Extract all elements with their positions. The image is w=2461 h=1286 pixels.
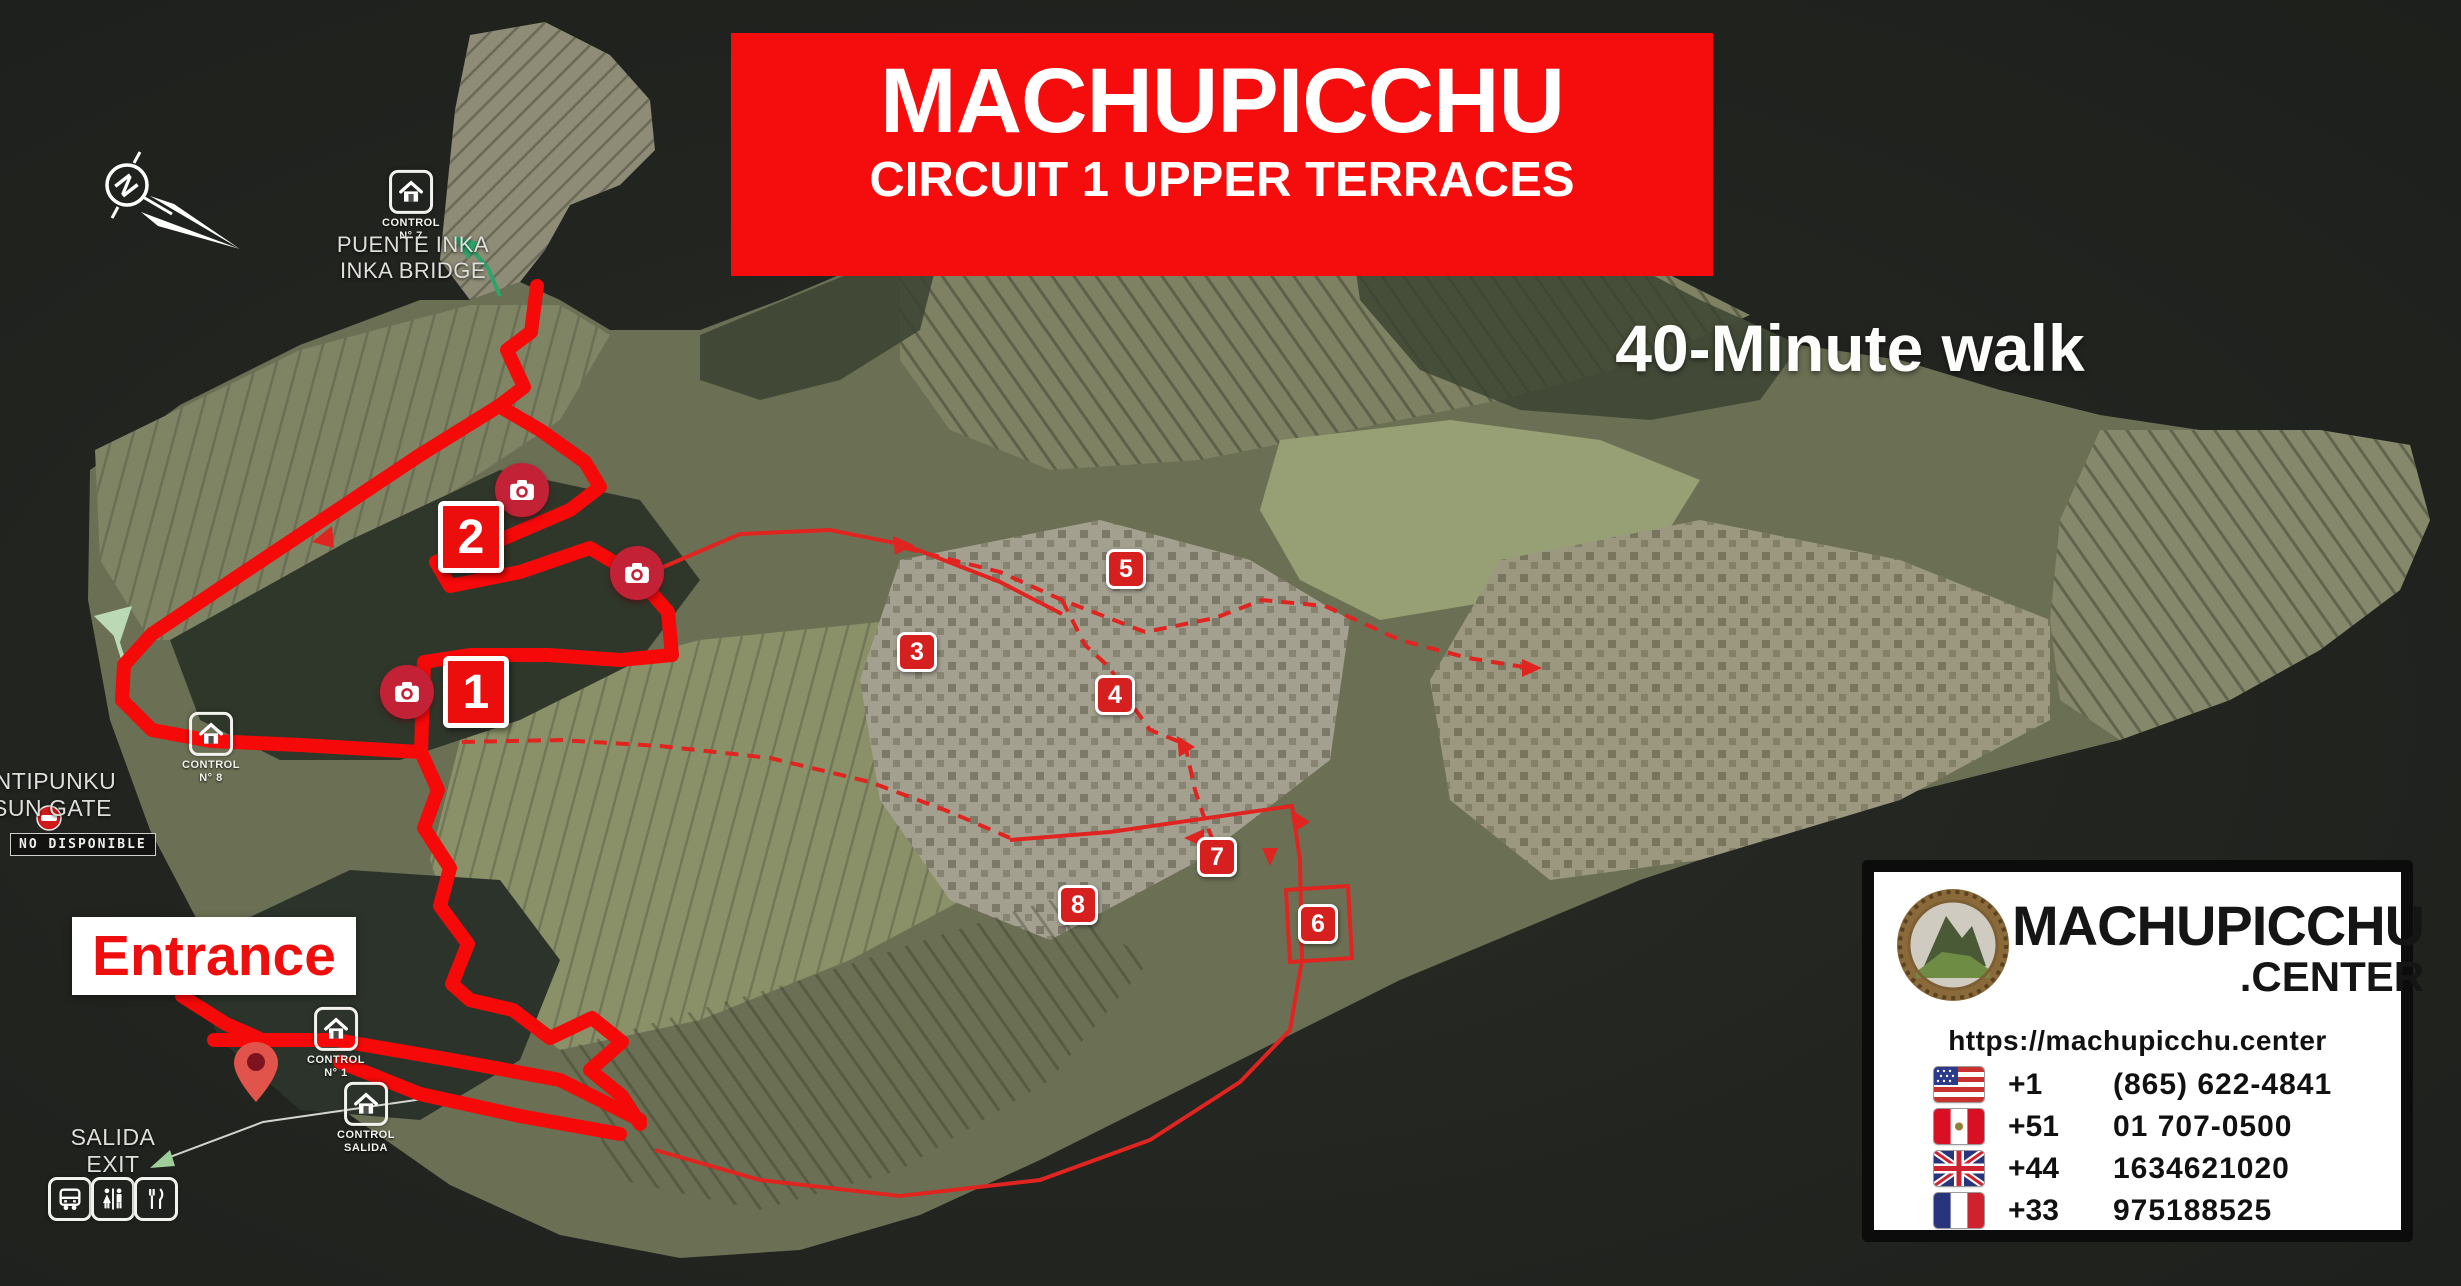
title-banner: MACHUPICCHU CIRCUIT 1 UPPER TERRACES bbox=[731, 33, 1713, 276]
phone-row-peru: +51 01 707-0500 bbox=[1934, 1109, 2381, 1144]
restaurant-icon bbox=[134, 1177, 178, 1221]
compass-icon: N bbox=[107, 152, 240, 249]
entrance-label: Entrance bbox=[72, 917, 356, 995]
waypoint-7-badge: 7 bbox=[1197, 837, 1237, 877]
camera-photo-spot-icon bbox=[380, 665, 434, 719]
control-label: CONTROL bbox=[382, 217, 440, 229]
map-title: MACHUPICCHU bbox=[880, 53, 1564, 150]
compass-north-letter: N bbox=[108, 169, 144, 203]
phone-row-france: +33 975188525 bbox=[1934, 1193, 2381, 1228]
waypoint-6-badge: 6 bbox=[1298, 904, 1338, 944]
brand-name: MACHUPICCHU bbox=[2012, 898, 2424, 954]
control-house-icon bbox=[189, 712, 233, 756]
photo-stop-1-badge: 1 bbox=[443, 656, 509, 728]
waypoint-8-badge: 8 bbox=[1058, 885, 1098, 925]
camera-photo-spot-icon bbox=[610, 546, 664, 600]
map-subtitle: CIRCUIT 1 UPPER TERRACES bbox=[869, 152, 1574, 208]
control-house-icon bbox=[344, 1082, 388, 1126]
bus-icon bbox=[48, 1177, 92, 1221]
phone-row-us: +1 (865) 622-4841 bbox=[1934, 1067, 2381, 1102]
united-kingdom-flag-icon bbox=[1934, 1151, 1984, 1186]
united-states-flag-icon bbox=[1934, 1067, 1984, 1102]
control-house-icon bbox=[314, 1007, 358, 1051]
phone-row-uk: +44 1634621020 bbox=[1934, 1151, 2381, 1186]
puente-inka-label: PUENTE INKA INKA BRIDGE bbox=[337, 232, 489, 284]
photo-stop-2-badge: 2 bbox=[438, 501, 504, 573]
france-flag-icon bbox=[1934, 1193, 1984, 1228]
machupicchu-circuit-map: N MACHUPICCHU CIRCUIT 1 UPPER TERRACES 4… bbox=[0, 0, 2461, 1286]
contact-info-box: MACHUPICCHU .CENTER https://machupicchu.… bbox=[1862, 860, 2413, 1242]
machupicchu-center-logo bbox=[1894, 886, 2012, 1009]
intipunku-label: INTIPUNKU SUN GATE bbox=[0, 768, 116, 822]
restrooms-icon bbox=[91, 1177, 135, 1221]
control-1: CONTROL N° 1 bbox=[307, 1007, 365, 1079]
waypoint-5-badge: 5 bbox=[1106, 549, 1146, 589]
brand-tld: .CENTER bbox=[2240, 956, 2424, 998]
waypoint-3-badge: 3 bbox=[897, 632, 937, 672]
entrance-pin-icon bbox=[234, 1042, 278, 1102]
salida-exit-label: SALIDA EXIT bbox=[71, 1124, 156, 1178]
sun-gate-status-badge: NO DISPONIBLE bbox=[10, 833, 156, 856]
waypoint-4-badge: 4 bbox=[1095, 675, 1135, 715]
website-url: https://machupicchu.center bbox=[1894, 1025, 2381, 1057]
control-8: CONTROL N° 8 bbox=[182, 712, 240, 784]
peru-flag-icon bbox=[1934, 1109, 1984, 1144]
walk-duration-label: 40-Minute walk bbox=[1510, 310, 2190, 386]
control-salida: CONTROL SALIDA bbox=[337, 1082, 395, 1154]
control-house-icon bbox=[389, 170, 433, 214]
